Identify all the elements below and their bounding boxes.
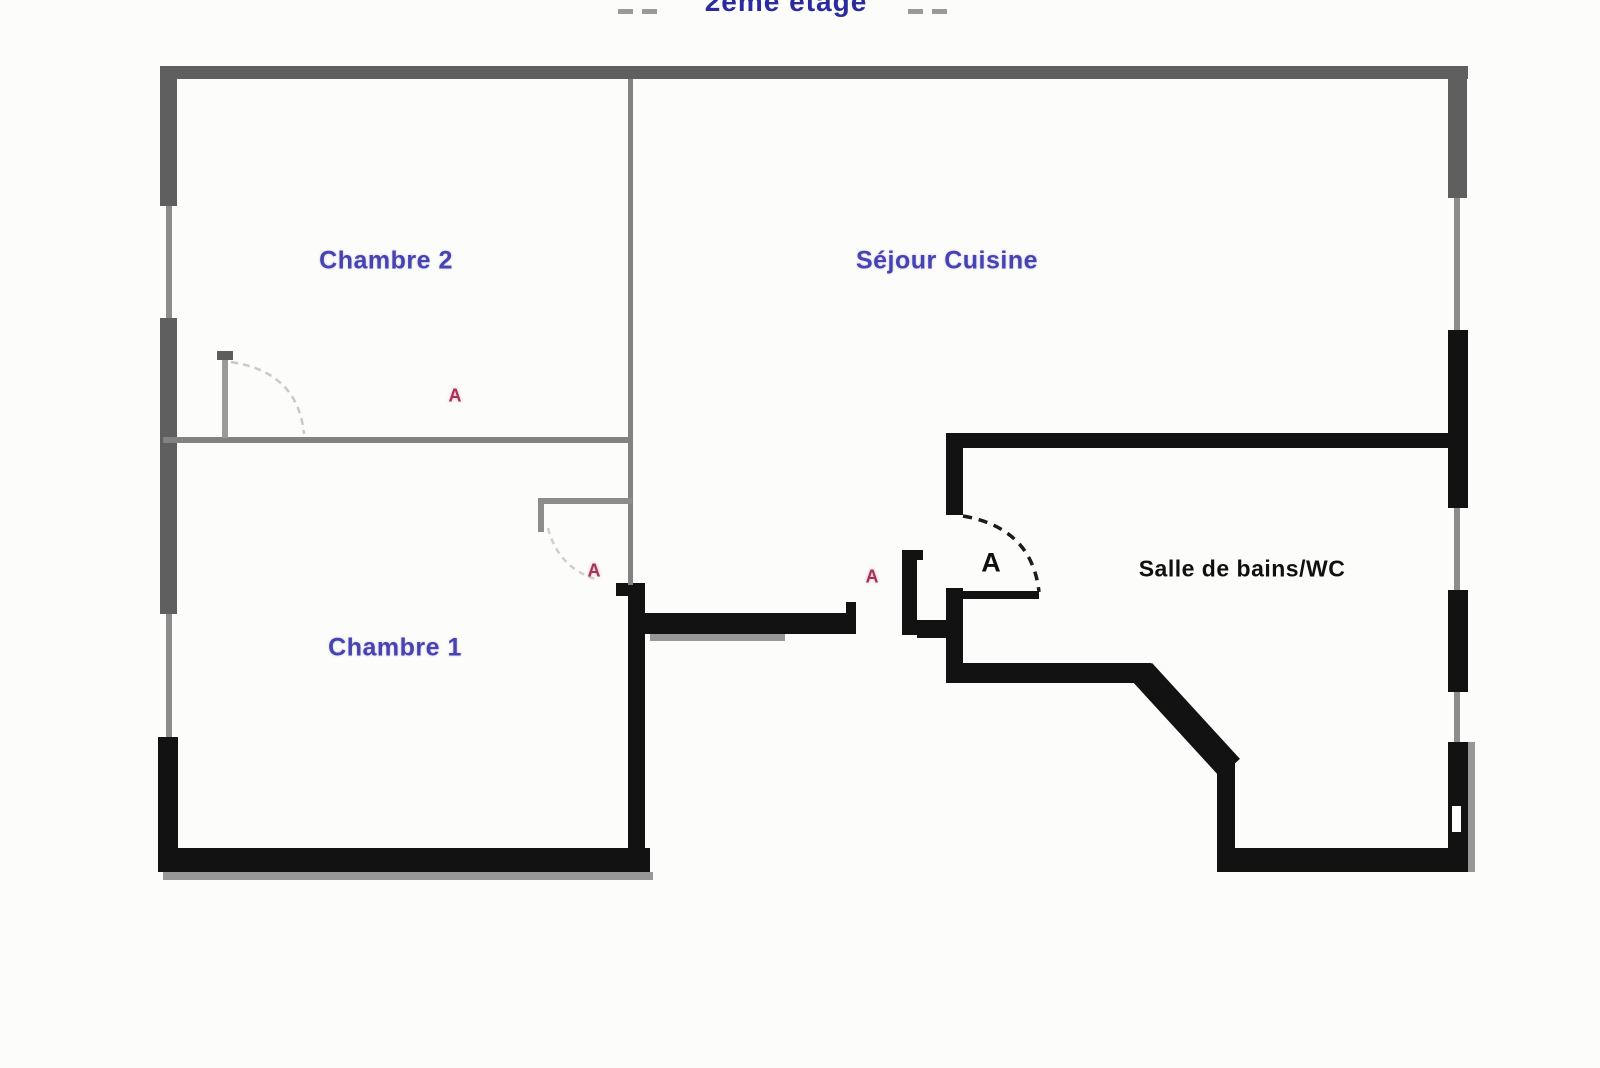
wall-bathroom-diagonal <box>1142 672 1230 768</box>
chambre2-door-arc <box>231 362 304 434</box>
marker-a-chambre2: A <box>449 386 462 407</box>
marker-a-hall: A <box>866 567 879 588</box>
marker-a-bathroom: A <box>981 548 1001 579</box>
floor-plan: 2ème étage Chambre 2 Séjour <box>0 0 1600 1068</box>
room-label-salle-de-bains: Salle de bains/WC <box>1139 556 1346 583</box>
room-label-sejour-cuisine: Séjour Cuisine <box>856 247 1038 276</box>
room-label-chambre1: Chambre 1 <box>328 634 462 663</box>
plan-curves <box>0 0 1600 1068</box>
marker-a-chambre1: A <box>588 561 601 582</box>
bathroom-door-arc <box>963 516 1039 592</box>
room-label-chambre2: Chambre 2 <box>319 247 453 276</box>
